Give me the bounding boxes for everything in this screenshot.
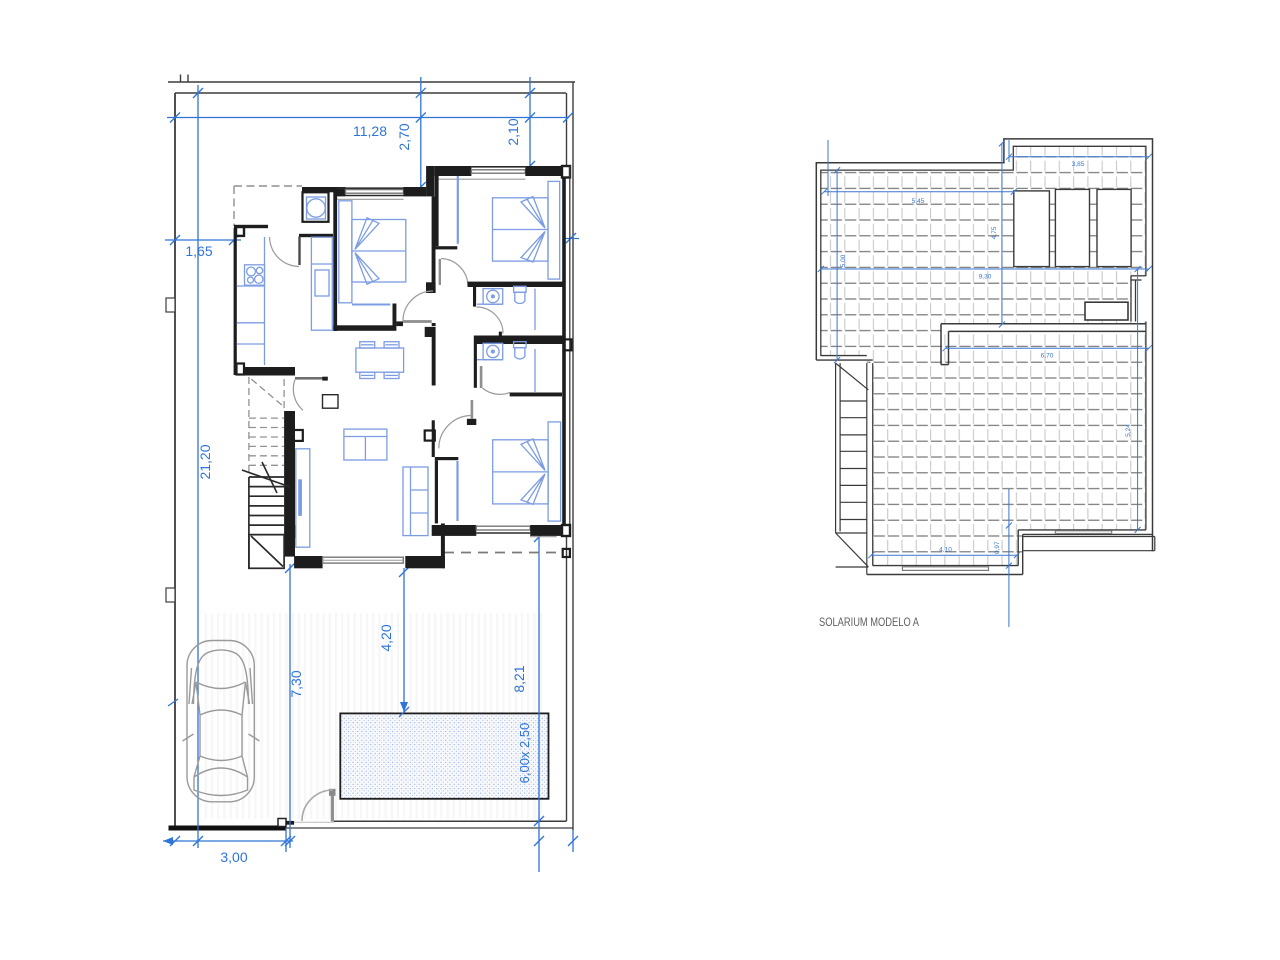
svg-text:4,75: 4,75 <box>991 226 998 239</box>
svg-text:3,00: 3,00 <box>220 849 247 865</box>
svg-text:9,30: 9,30 <box>979 274 992 281</box>
svg-text:2,70: 2,70 <box>396 123 412 150</box>
svg-text:6,70: 6,70 <box>1041 353 1054 360</box>
svg-text:SOLARIUM MODELO A: SOLARIUM MODELO A <box>819 615 920 629</box>
svg-text:21,20: 21,20 <box>197 444 213 479</box>
svg-text:5,45: 5,45 <box>912 198 925 205</box>
svg-text:2,10: 2,10 <box>505 118 521 145</box>
svg-text:6,00x 2,50: 6,00x 2,50 <box>517 723 532 784</box>
svg-text:7,30: 7,30 <box>288 670 304 697</box>
svg-text:8,21: 8,21 <box>511 665 527 692</box>
svg-text:3,85: 3,85 <box>1072 161 1085 168</box>
svg-text:0,97: 0,97 <box>994 541 1001 554</box>
svg-text:4,20: 4,20 <box>378 624 394 651</box>
svg-text:11,28: 11,28 <box>353 123 387 139</box>
svg-text:1,65: 1,65 <box>185 243 212 259</box>
svg-text:5,24: 5,24 <box>1125 424 1132 437</box>
svg-text:5,00: 5,00 <box>840 254 847 267</box>
svg-text:4,10: 4,10 <box>939 547 952 554</box>
